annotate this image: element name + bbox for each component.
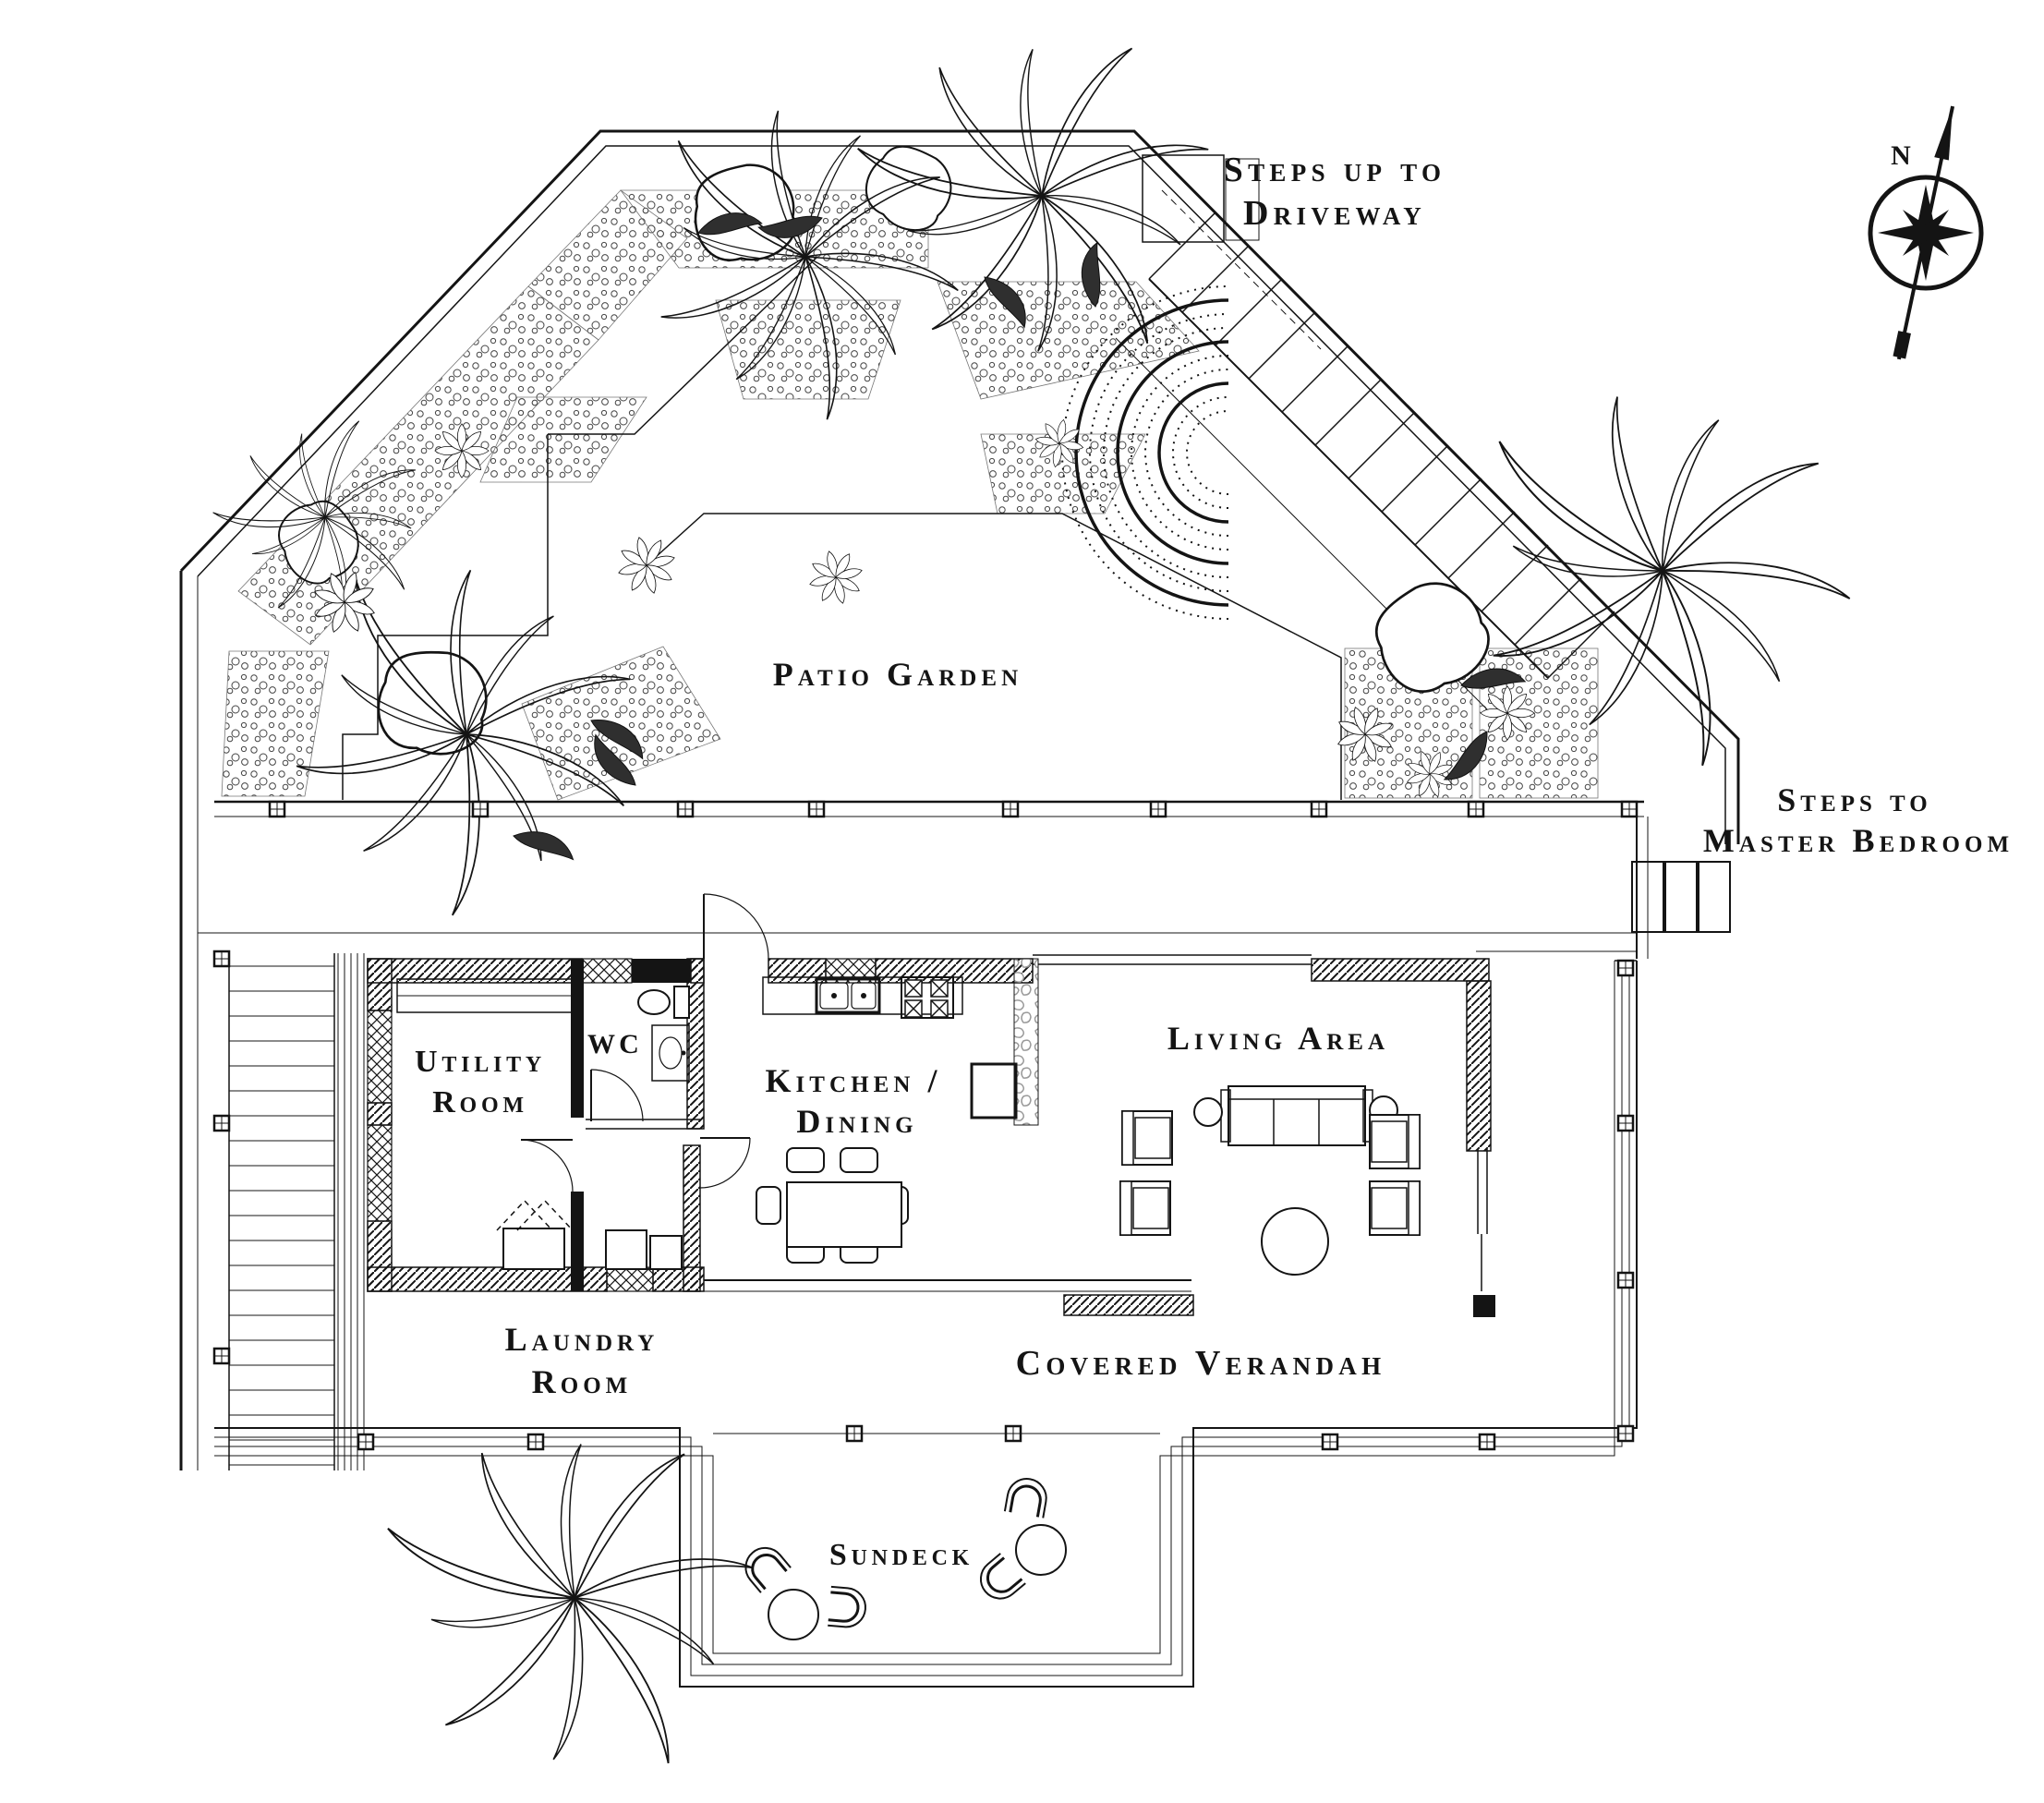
laundry-appliance — [606, 1230, 647, 1269]
deck-chair — [738, 1540, 791, 1592]
label-utility-2: Room — [432, 1085, 528, 1119]
label-wc: WC — [587, 1029, 643, 1059]
armchair — [1370, 1181, 1420, 1235]
label-laundry-2: Room — [532, 1363, 633, 1400]
label-kitchen-2: Dining — [796, 1103, 917, 1140]
label-living-area: Living Area — [1167, 1020, 1389, 1057]
left-side-steps — [214, 951, 364, 1470]
deck-chair — [1005, 1476, 1049, 1519]
deck-chair — [973, 1554, 1025, 1606]
wc-basin — [659, 1037, 682, 1069]
dining-table — [787, 1182, 901, 1247]
wc-fixtures — [638, 986, 689, 1081]
floor-plan-page: N Steps up to Driveway Patio Garden Step… — [0, 0, 2044, 1803]
room-labels: Steps up to Driveway Patio Garden Steps … — [415, 151, 2014, 1572]
floor-plan-drawing: N Steps up to Driveway Patio Garden Step… — [0, 0, 2044, 1803]
label-steps-driveway-1: Steps up to — [1224, 151, 1446, 189]
living-area-furniture — [1120, 1086, 1420, 1275]
armchair — [1120, 1181, 1170, 1235]
label-covered-verandah: Covered Verandah — [1016, 1344, 1386, 1383]
compass-rose: N — [1870, 104, 1981, 360]
kitchen-fixtures — [763, 959, 1038, 1125]
side-table — [1194, 1098, 1222, 1126]
deck-table — [1016, 1525, 1066, 1575]
dining-set — [756, 1148, 908, 1263]
label-steps-driveway-2: Driveway — [1243, 194, 1426, 233]
label-steps-master-1: Steps to — [1777, 781, 1932, 818]
label-kitchen-1: Kitchen / — [766, 1062, 942, 1099]
laundry-appliance — [650, 1236, 682, 1269]
label-utility-1: Utility — [415, 1045, 546, 1079]
laundry-fixtures — [606, 1230, 682, 1269]
sofa — [1228, 1086, 1365, 1145]
garden-posts — [270, 802, 1637, 817]
stone-feature-wall — [1014, 959, 1038, 1125]
label-laundry-1: Laundry — [505, 1321, 659, 1358]
label-sundeck: Sundeck — [829, 1538, 974, 1572]
toilet-bowl — [638, 990, 670, 1014]
washer — [503, 1228, 564, 1269]
driveway-steps — [1116, 155, 1615, 711]
coffee-table — [1262, 1208, 1328, 1275]
toilet-tank — [674, 986, 689, 1018]
star-plant — [435, 424, 489, 478]
compass-north-label: N — [1891, 140, 1915, 171]
armchair — [1122, 1111, 1172, 1165]
stove-burners — [905, 980, 948, 1017]
dark-leaf — [512, 828, 577, 859]
armchair — [1370, 1115, 1420, 1168]
label-patio-garden: Patio Garden — [773, 656, 1022, 693]
label-steps-master-2: Master Bedroom — [1703, 822, 2014, 859]
palm-tree-sundeck — [366, 1400, 791, 1803]
star-plant — [611, 530, 682, 600]
utility-room-fixtures — [397, 979, 573, 1269]
deck-chair — [828, 1587, 867, 1628]
deck-table — [768, 1590, 818, 1640]
master-bedroom-steps — [1632, 862, 1730, 932]
kitchen-appliance — [972, 1064, 1016, 1118]
star-plant — [799, 540, 873, 614]
